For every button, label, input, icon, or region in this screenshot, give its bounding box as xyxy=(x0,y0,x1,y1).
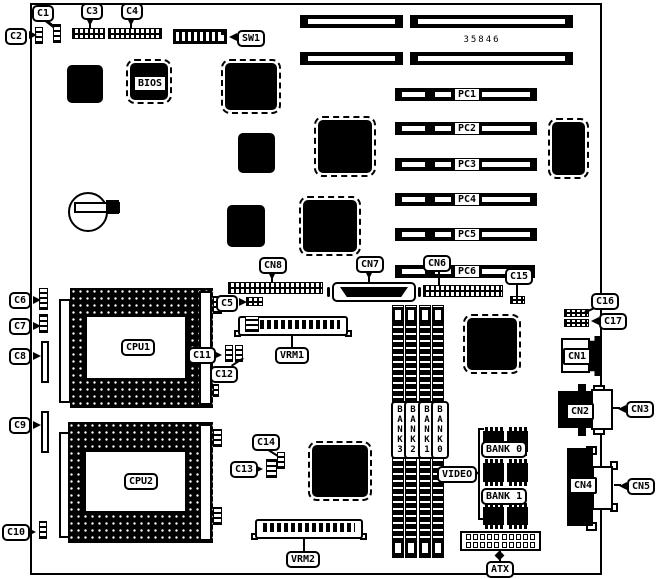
simm-latch xyxy=(406,541,416,555)
simm-latch xyxy=(393,308,403,322)
callout-c17: C17 xyxy=(599,313,627,330)
callout-c3: C3 xyxy=(81,3,103,20)
callout-video: VIDEO xyxy=(437,466,477,483)
callout-cn3: CN3 xyxy=(626,401,654,418)
atx-connector xyxy=(460,531,541,551)
video-bank1-label: BANK 1 xyxy=(481,488,527,505)
header-cn6 xyxy=(423,285,503,297)
callout-vrm2: VRM2 xyxy=(286,551,320,568)
dip-switch-sw1 xyxy=(173,29,227,44)
header-c17 xyxy=(564,319,589,327)
ic-chip xyxy=(238,133,275,173)
callout-cn4: CN4 xyxy=(569,477,597,494)
vrm1-pins xyxy=(246,320,340,329)
callout-pointer-cn5 xyxy=(619,482,627,490)
pci-slot-label: PC1 xyxy=(454,88,480,101)
callout-c14: C14 xyxy=(252,434,280,451)
simm-latch xyxy=(406,308,416,322)
isa-slot xyxy=(300,52,403,65)
connector-c12 xyxy=(213,384,219,397)
connector-c13 xyxy=(266,459,277,478)
pci-slot-label: PC6 xyxy=(454,265,480,278)
pci-slot-label: PC2 xyxy=(454,122,480,135)
ic-chip xyxy=(227,205,265,247)
callout-c10: C10 xyxy=(2,524,30,541)
battery-clip-end xyxy=(106,200,119,214)
isa-slot xyxy=(410,15,573,28)
video-memory-chip xyxy=(507,459,528,486)
callout-c15: C15 xyxy=(505,268,533,285)
cn2-pin xyxy=(578,427,586,436)
callout-cn5: CN5 xyxy=(627,478,655,495)
motherboard-diagram: C1 C2 C3 C4 SW1 BIOS 35846 PC1 PC2 xyxy=(0,0,658,579)
callout-cn1: CN1 xyxy=(563,348,591,365)
ic-chip xyxy=(552,122,585,175)
callout-line-cn6 xyxy=(438,270,440,285)
memory-slot-bank0: BANK0 xyxy=(432,305,444,558)
callout-c6: C6 xyxy=(9,292,31,309)
cn7-dsub-pins xyxy=(340,287,408,297)
vrm2-pins xyxy=(263,523,355,532)
header-c4 xyxy=(108,28,162,39)
connector-c11 xyxy=(225,345,233,362)
video-brace-bottom xyxy=(478,518,484,520)
pci-slot-label: PC3 xyxy=(454,158,480,171)
video-memory-chip xyxy=(483,503,504,529)
cpu2-lever xyxy=(199,424,212,541)
callout-cn6: CN6 xyxy=(423,255,451,272)
callout-c11: C11 xyxy=(188,347,216,364)
part-number: 35846 xyxy=(458,35,506,45)
callout-pointer-c6 xyxy=(33,296,41,304)
pci-slot-label: PC5 xyxy=(454,228,480,241)
pci-slot-pc3: PC3 xyxy=(395,158,537,171)
callout-line-vrm2 xyxy=(303,539,305,551)
pci-slot-label: PC4 xyxy=(454,193,480,206)
cpu2-label: CPU2 xyxy=(124,473,158,490)
atx-pin-row xyxy=(466,534,535,540)
isa-slot xyxy=(300,15,403,28)
simm-latch xyxy=(433,541,443,555)
callout-pointer-c17 xyxy=(591,317,599,325)
connector-c5 xyxy=(246,297,263,306)
callout-cn8: CN8 xyxy=(259,257,287,274)
cpu2-side-connector xyxy=(213,429,222,447)
dip-switch-positions xyxy=(176,32,224,41)
ic-chip xyxy=(303,200,357,252)
header-c3 xyxy=(72,28,105,39)
simm-latch xyxy=(420,308,430,322)
connector-c9 xyxy=(41,411,49,453)
cn7-ear-left xyxy=(327,287,330,297)
simm-latch xyxy=(433,308,443,322)
callout-c9: C9 xyxy=(9,417,31,434)
connector-c15 xyxy=(510,296,525,304)
header-cn8 xyxy=(228,282,323,294)
video-brace-top xyxy=(478,428,484,430)
dip-switch-last-position xyxy=(218,35,224,41)
callout-pointer-c5 xyxy=(239,298,247,306)
memory-slot-bank2: BANK2 xyxy=(405,305,417,558)
cn7-connector xyxy=(332,282,416,302)
pci-slot-pc5: PC5 xyxy=(395,228,537,241)
vrm2-socket xyxy=(255,519,363,539)
cpu1-label: CPU1 xyxy=(121,339,155,356)
callout-pointer-c7 xyxy=(33,322,41,330)
callout-c5: C5 xyxy=(216,295,238,312)
video-memory-chip xyxy=(483,459,504,486)
cn2-connector-shell xyxy=(591,389,613,430)
bios-label: BIOS xyxy=(133,75,167,92)
callout-sw1: SW1 xyxy=(237,30,265,47)
memory-slot-bank3: BANK3 xyxy=(392,305,404,558)
callout-c12: C12 xyxy=(210,366,238,383)
connector-c8 xyxy=(41,341,49,383)
callout-cn7: CN7 xyxy=(356,256,384,273)
memory-slot-bank1: BANK1 xyxy=(419,305,431,558)
callout-cn2: CN2 xyxy=(566,403,594,420)
cpu2-side-connector xyxy=(213,507,222,525)
ic-chip xyxy=(67,65,103,103)
isa-slot xyxy=(410,52,573,65)
callout-pointer-cn3 xyxy=(618,405,626,413)
callout-line-vrm1 xyxy=(291,336,293,347)
memory-bank0-label: BANK0 xyxy=(431,401,449,459)
callout-vrm1: VRM1 xyxy=(275,347,309,364)
callout-atx: ATX xyxy=(486,561,514,578)
callout-c7: C7 xyxy=(9,318,31,335)
video-bank0-label: BANK 0 xyxy=(481,441,527,458)
pci-slot-pc1: PC1 xyxy=(395,88,537,101)
callout-c1: C1 xyxy=(32,5,54,22)
atx-pin-row xyxy=(466,542,535,548)
callout-pointer-c9 xyxy=(33,421,41,429)
video-memory-chip xyxy=(507,503,528,529)
callout-c4: C4 xyxy=(121,3,143,20)
callout-c8: C8 xyxy=(9,348,31,365)
cn7-ear-right xyxy=(418,287,421,297)
ic-chip xyxy=(318,120,372,173)
connector-small xyxy=(245,316,259,332)
pci-slot-pc2: PC2 xyxy=(395,122,537,135)
callout-pointer-sw1 xyxy=(229,33,237,41)
ic-chip xyxy=(312,445,368,497)
simm-latch xyxy=(393,541,403,555)
callout-c13: C13 xyxy=(230,461,258,478)
callout-pointer-c8 xyxy=(33,352,41,360)
callout-pointer-c2 xyxy=(29,31,37,39)
pci-slot-pc4: PC4 xyxy=(395,193,537,206)
ic-chip xyxy=(467,318,517,370)
callout-c16: C16 xyxy=(591,293,619,310)
callout-c2: C2 xyxy=(5,28,27,45)
simm-latch xyxy=(420,541,430,555)
connector-c10 xyxy=(39,521,47,539)
ic-chip xyxy=(225,63,277,110)
